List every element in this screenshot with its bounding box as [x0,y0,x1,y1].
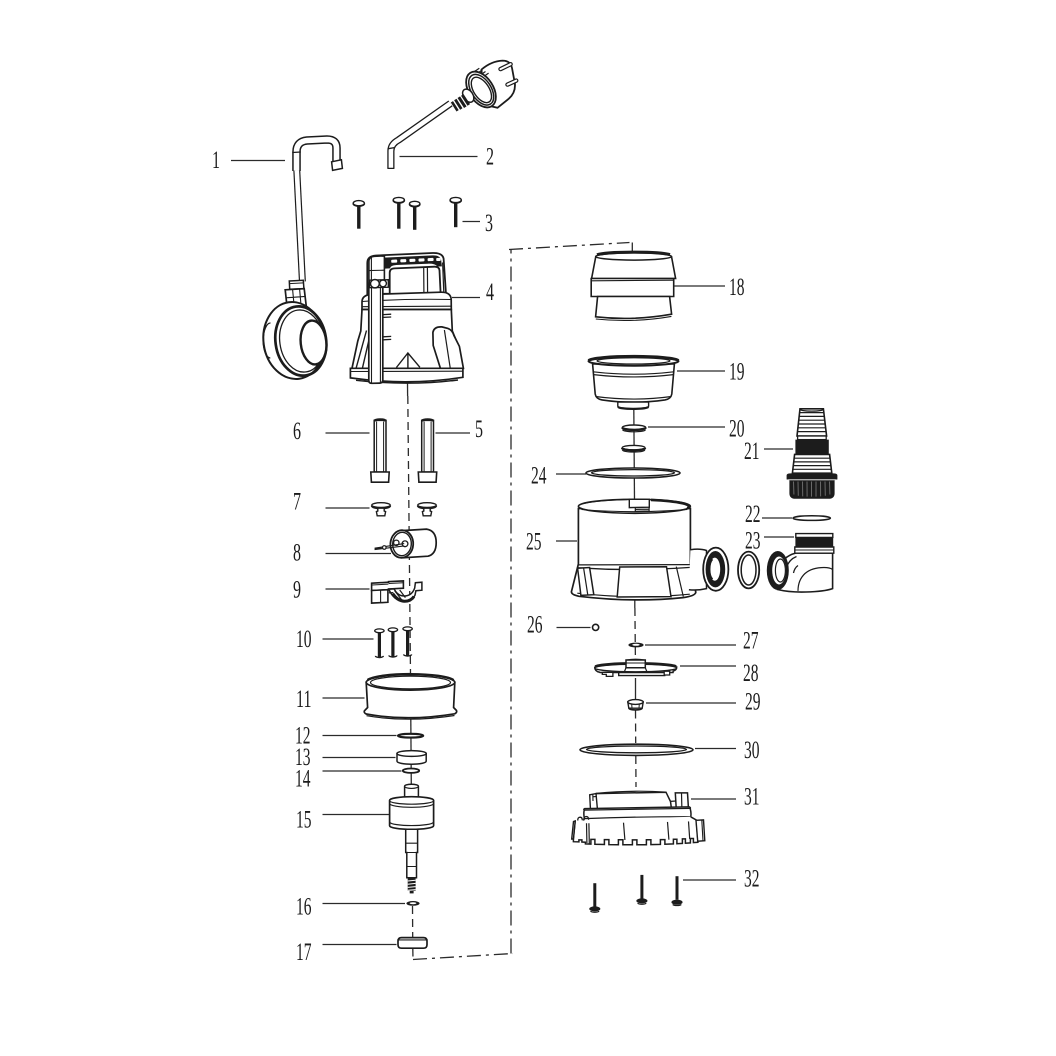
svg-text:5: 5 [475,416,483,443]
svg-text:32: 32 [744,866,760,893]
svg-text:11: 11 [296,686,312,713]
svg-text:20: 20 [729,416,745,443]
svg-text:16: 16 [296,894,312,921]
svg-text:23: 23 [745,528,761,555]
svg-text:17: 17 [296,939,312,966]
svg-text:24: 24 [531,463,547,490]
svg-text:31: 31 [744,784,760,811]
svg-text:4: 4 [486,279,494,306]
svg-text:30: 30 [744,737,760,764]
svg-text:2: 2 [486,144,494,171]
svg-text:25: 25 [526,529,542,556]
svg-text:9: 9 [293,577,301,604]
svg-text:15: 15 [296,807,312,834]
svg-text:29: 29 [745,689,761,716]
svg-text:8: 8 [293,540,301,567]
svg-text:18: 18 [729,274,745,301]
svg-text:22: 22 [745,501,761,528]
svg-text:7: 7 [293,489,301,516]
svg-text:19: 19 [729,359,745,386]
svg-text:6: 6 [293,418,301,445]
svg-text:26: 26 [527,612,543,639]
svg-text:28: 28 [743,660,759,687]
svg-text:21: 21 [744,438,760,465]
svg-text:10: 10 [296,626,312,653]
svg-text:14: 14 [295,766,311,793]
svg-text:3: 3 [485,210,493,237]
svg-text:1: 1 [212,147,220,174]
svg-text:27: 27 [743,628,759,655]
